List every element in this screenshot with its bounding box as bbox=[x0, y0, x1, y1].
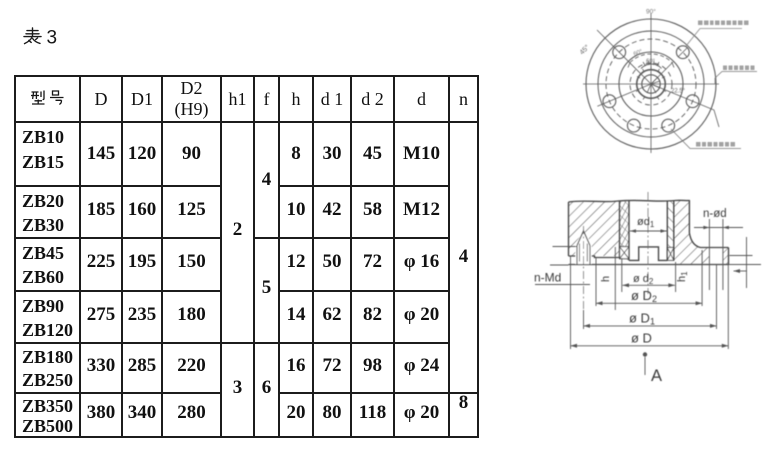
svg-text:60°: 60° bbox=[633, 49, 644, 58]
svg-text:ø d2: ø d2 bbox=[633, 273, 654, 286]
svg-text:ø D2: ø D2 bbox=[631, 288, 657, 304]
svg-text:90°: 90° bbox=[646, 8, 656, 16]
svg-text:22.5°: 22.5° bbox=[671, 89, 686, 95]
svg-text:h: h bbox=[600, 276, 612, 282]
svg-text:n-ød: n-ød bbox=[703, 208, 727, 220]
svg-text:45°: 45° bbox=[578, 43, 591, 56]
svg-text:ø D: ø D bbox=[631, 331, 652, 346]
svg-text:ød1: ød1 bbox=[637, 216, 655, 229]
svg-text:n-Md: n-Md bbox=[534, 271, 561, 285]
svg-text:A: A bbox=[651, 367, 662, 385]
svg-text:60°: 60° bbox=[646, 59, 656, 65]
svg-text:ø D1: ø D1 bbox=[629, 311, 655, 327]
svg-text:h1: h1 bbox=[676, 271, 689, 282]
